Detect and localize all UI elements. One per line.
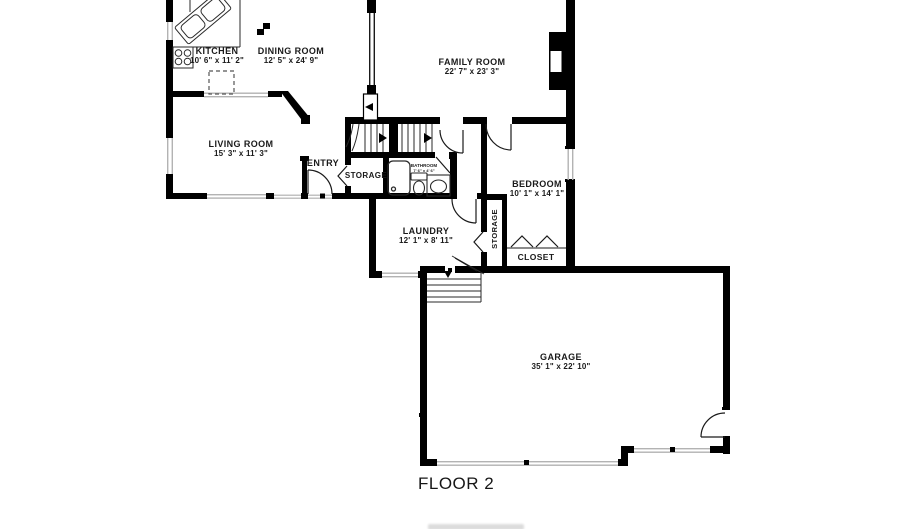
- room-name: STORAGE: [490, 209, 500, 249]
- room-label-living: LIVING ROOM 15' 3" x 11' 3": [209, 139, 274, 158]
- room-label-family: FAMILY ROOM 22' 7" x 23' 3": [439, 57, 506, 76]
- front-door: [308, 170, 332, 194]
- room-dims: 22' 7" x 23' 3": [445, 67, 499, 76]
- room-label-garage: GARAGE 35' 1" x 22' 10": [531, 352, 590, 371]
- floor-plan-drawing: [0, 0, 900, 529]
- kitchen-island-dashed: [209, 71, 234, 94]
- room-name: ENTRY: [307, 158, 339, 168]
- room-dims: 15' 3" x 11' 3": [214, 149, 268, 158]
- room-label-bedroom: BEDROOM 10' 1" x 14' 1": [510, 179, 564, 198]
- room-dims: 12' 5" x 24' 9": [264, 56, 318, 65]
- storage-closet-bifold-door: [474, 232, 483, 252]
- room-label-bathroom: BATHROOM 7' 6" x 4' 6": [411, 163, 437, 173]
- shower: [388, 161, 410, 195]
- room-label-dining: DINING ROOM 12' 5" x 24' 9": [258, 46, 324, 65]
- room-dims: 12' 1" x 8' 11": [399, 236, 453, 245]
- garage-service-door: [701, 413, 725, 437]
- room-label-closet: CLOSET: [518, 252, 555, 262]
- room-label-storage-hall: STORAGE: [345, 171, 387, 181]
- room-name: KITCHEN: [196, 46, 239, 56]
- bedroom-door: [486, 124, 511, 150]
- stair-direction-arrow: [424, 133, 432, 143]
- room-dims: 10' 6" x 11' 2": [190, 56, 244, 65]
- room-name: LAUNDRY: [403, 226, 449, 236]
- closet-bifold-doors: [507, 236, 566, 248]
- room-dims: 7' 6" x 4' 6": [413, 168, 434, 173]
- room-label-kitchen: KITCHEN 10' 6" x 11' 2": [190, 46, 244, 65]
- bathroom-sink: [427, 175, 450, 196]
- room-name: FAMILY ROOM: [439, 57, 506, 67]
- kitchen-sink: [174, 0, 231, 44]
- room-name: STORAGE: [345, 171, 387, 181]
- garage-staircase: [427, 256, 484, 302]
- room-name: LIVING ROOM: [209, 139, 274, 149]
- room-label-storage-closet: STORAGE: [490, 209, 500, 249]
- laundry-door: [452, 199, 476, 223]
- room-label-laundry: LAUNDRY 12' 1" x 8' 11": [399, 226, 453, 245]
- stair-down-arrow: [444, 271, 452, 278]
- room-name: DINING ROOM: [258, 46, 324, 56]
- floor-title: FLOOR 2: [418, 474, 494, 494]
- room-name: CLOSET: [518, 252, 555, 262]
- room-label-entry: ENTRY: [307, 158, 339, 168]
- room-name: GARAGE: [540, 352, 582, 362]
- bathroom-door: [436, 157, 450, 173]
- floor-plan: KITCHEN 10' 6" x 11' 2" DINING ROOM 12' …: [0, 0, 900, 529]
- room-dims: 10' 1" x 14' 1": [510, 189, 564, 198]
- stair-door: [440, 130, 463, 153]
- fireplace: [549, 32, 575, 90]
- bathroom-toilet: [411, 173, 427, 195]
- room-dims: 35' 1" x 22' 10": [531, 362, 590, 371]
- watermark-cutoff: [428, 524, 524, 529]
- room-name: BEDROOM: [512, 179, 562, 189]
- stair-railing: [364, 13, 378, 120]
